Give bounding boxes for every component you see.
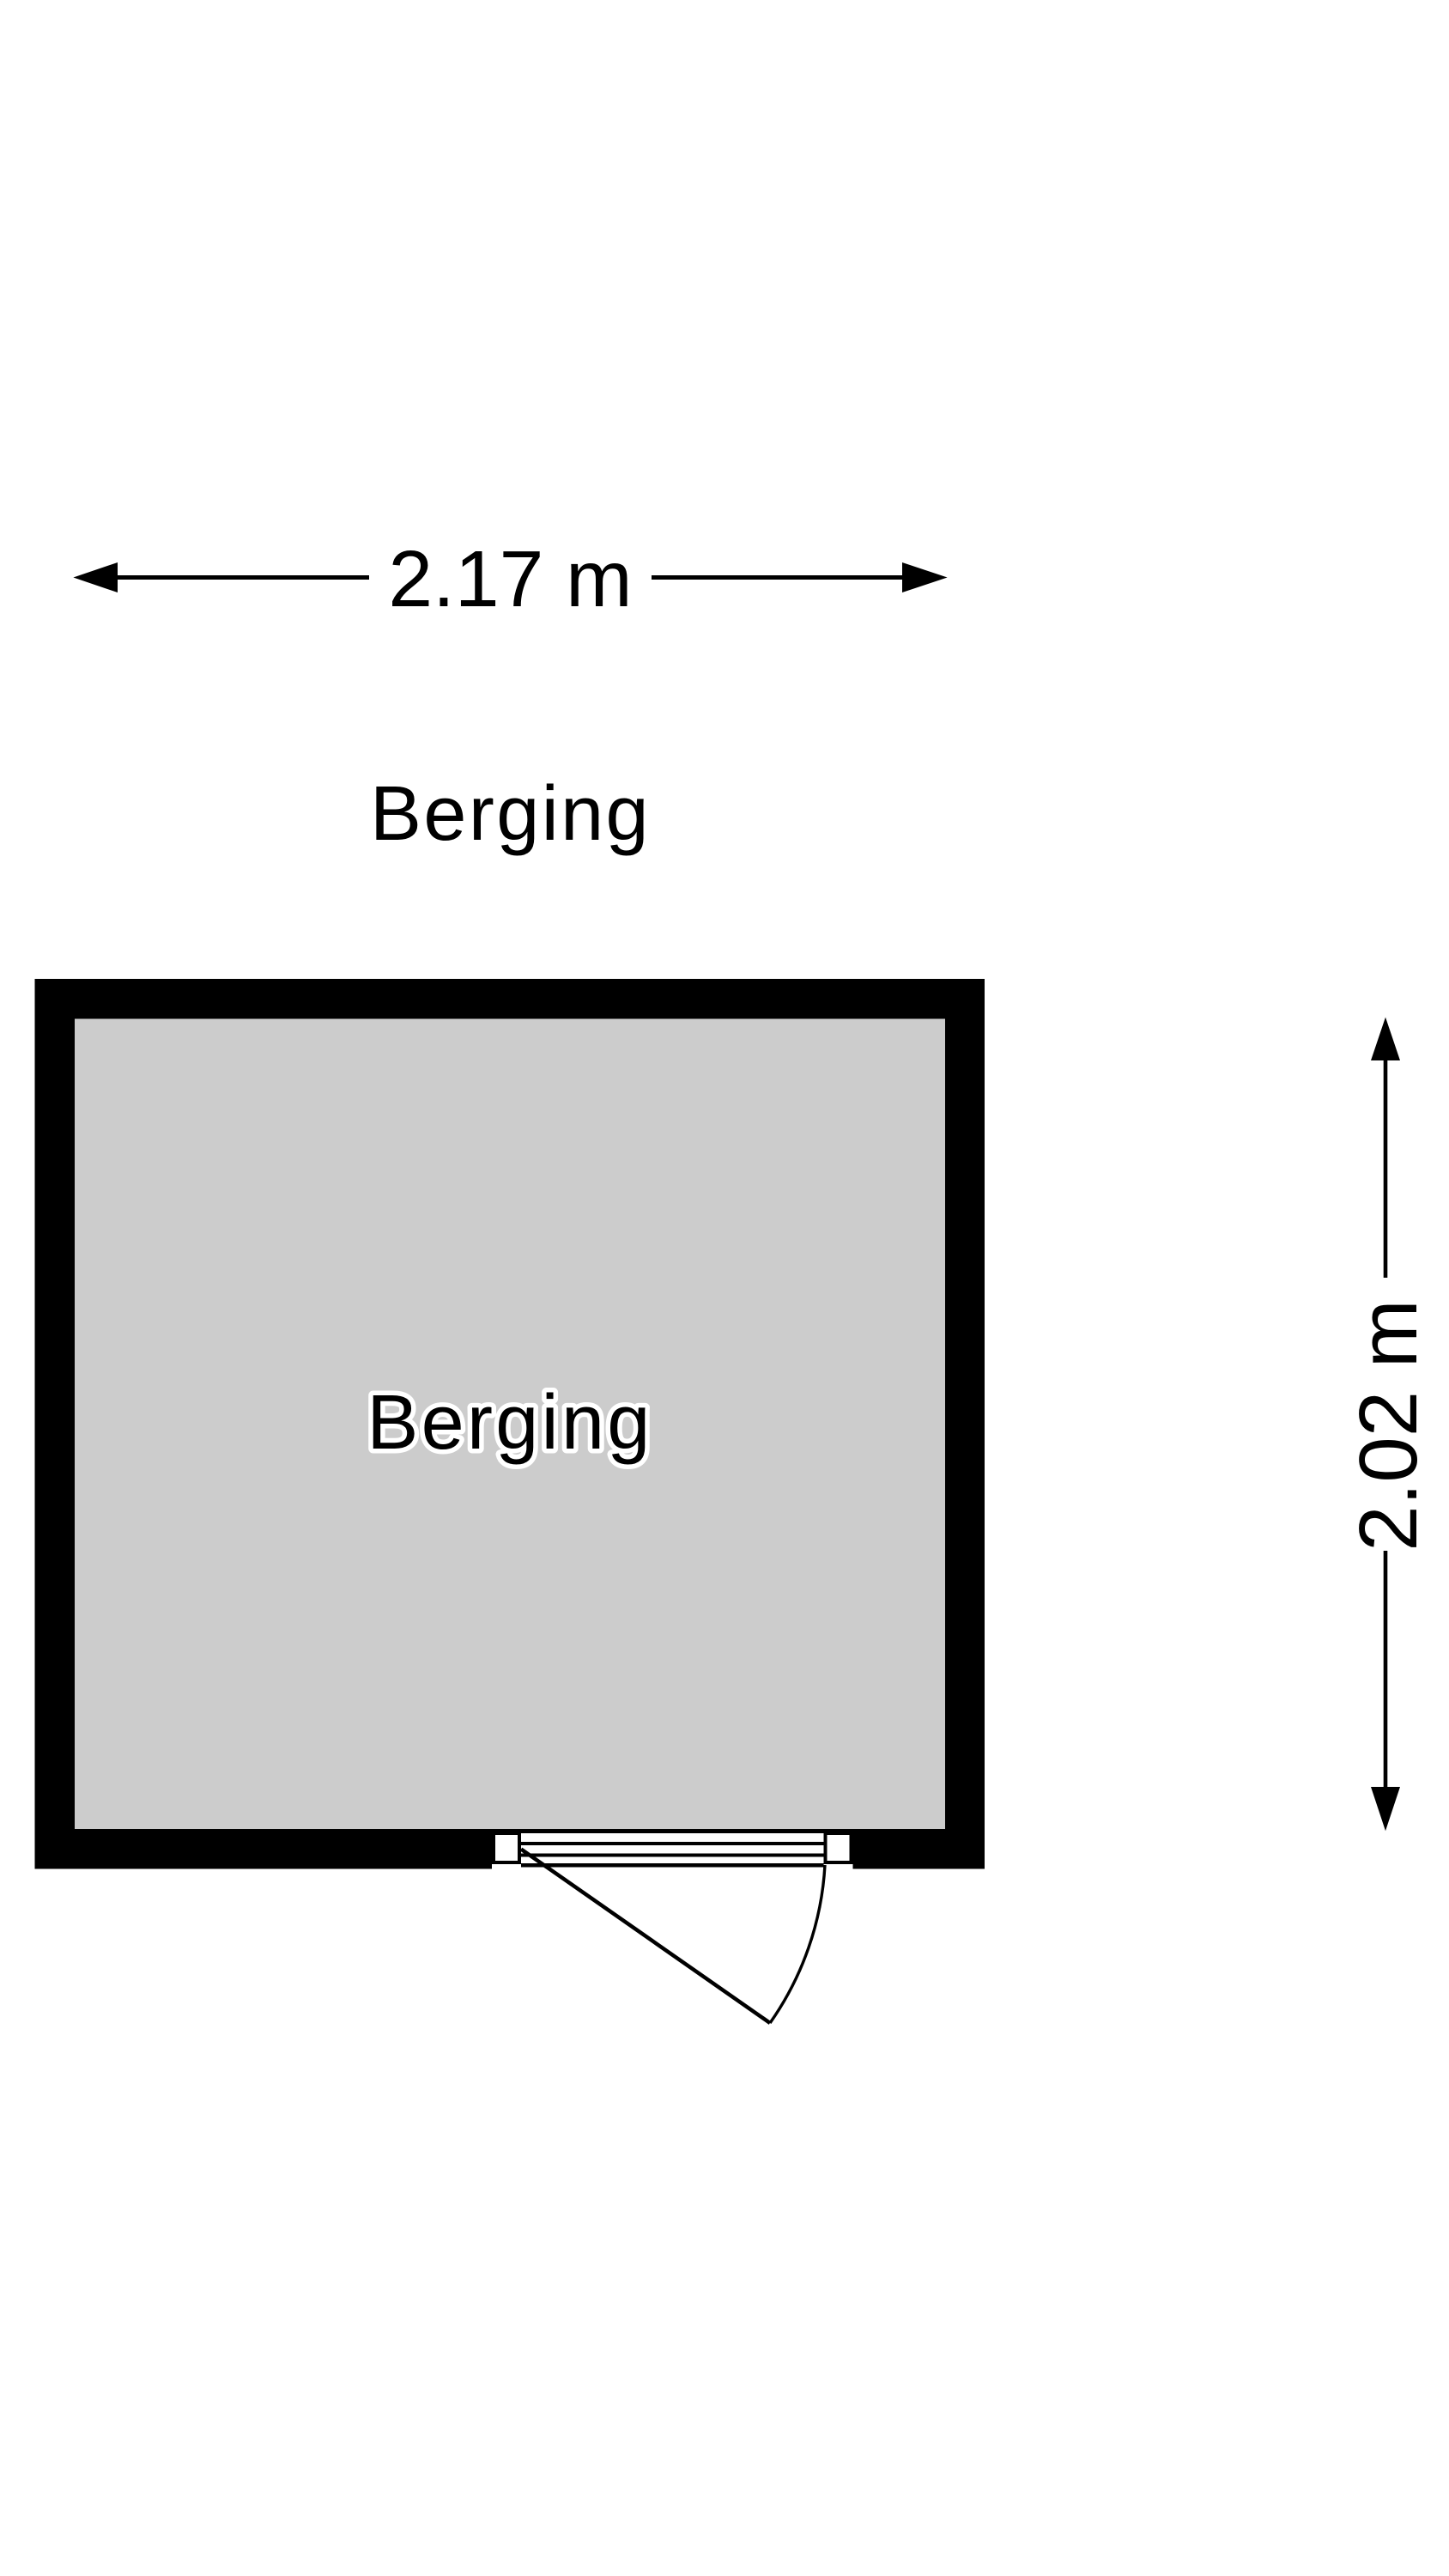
svg-text:2.02 m: 2.02 m	[1343, 1299, 1434, 1551]
svg-text:Berging: Berging	[367, 1380, 652, 1466]
svg-text:2.17 m: 2.17 m	[388, 534, 632, 623]
svg-text:Berging: Berging	[370, 771, 651, 857]
